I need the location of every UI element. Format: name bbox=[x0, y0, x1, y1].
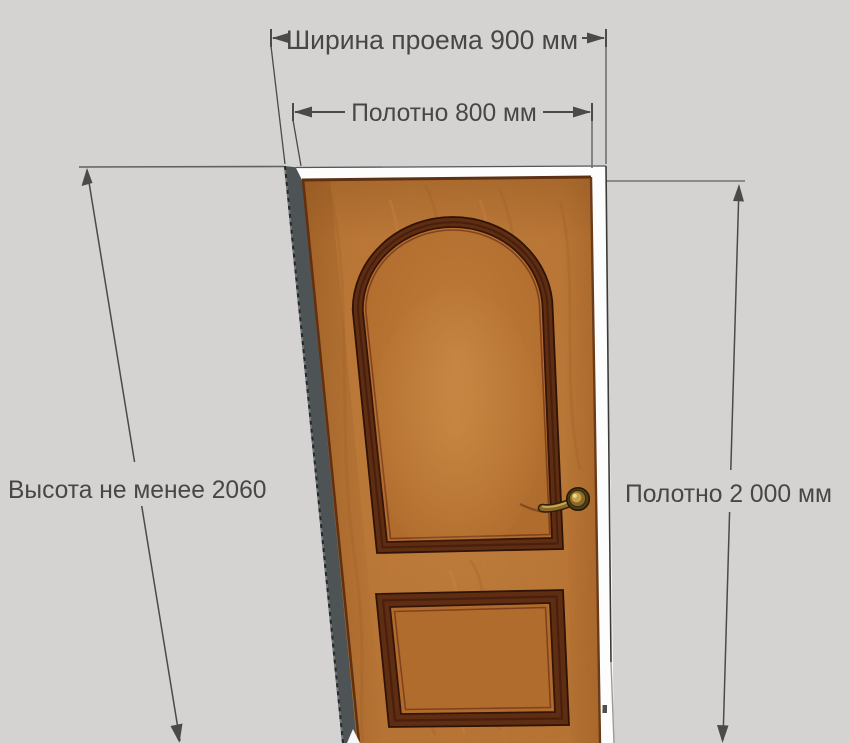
svg-text:Высота не менее 2060: Высота не менее 2060 bbox=[8, 477, 266, 504]
svg-text:Ширина проема 900 мм: Ширина проема 900 мм bbox=[286, 25, 578, 55]
svg-text:Полотно 800 мм: Полотно 800 мм bbox=[351, 100, 537, 127]
svg-text:Полотно 2 000 мм: Полотно 2 000 мм bbox=[625, 481, 832, 508]
